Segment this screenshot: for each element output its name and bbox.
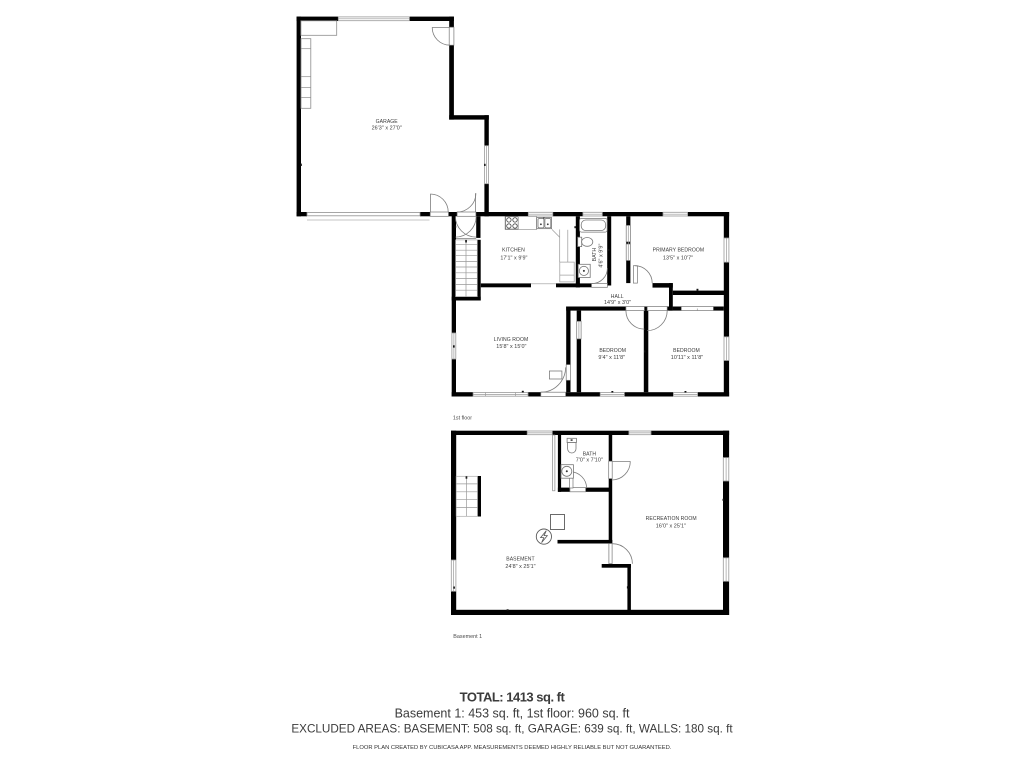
svg-text:7'0" x 7'10": 7'0" x 7'10" bbox=[576, 458, 603, 464]
svg-text:26'3" x 27'0": 26'3" x 27'0" bbox=[372, 126, 402, 132]
svg-text:PRIMARY BEDROOM: PRIMARY BEDROOM bbox=[653, 248, 705, 254]
svg-text:24'8" x 25'1": 24'8" x 25'1" bbox=[505, 564, 535, 570]
svg-text:15'8" x 15'0": 15'8" x 15'0" bbox=[496, 344, 526, 350]
svg-text:GARAGE: GARAGE bbox=[376, 119, 399, 125]
svg-text:RECREATION ROOM: RECREATION ROOM bbox=[646, 516, 697, 522]
svg-text:HALL: HALL bbox=[611, 294, 624, 300]
svg-text:KITCHEN: KITCHEN bbox=[502, 248, 525, 254]
svg-text:FLOOR PLAN CREATED BY CUBICASA: FLOOR PLAN CREATED BY CUBICASA APP. MEAS… bbox=[353, 745, 672, 751]
svg-text:BEDROOM: BEDROOM bbox=[673, 348, 700, 354]
svg-text:4'6" x 9'9": 4'6" x 9'9" bbox=[598, 244, 604, 268]
svg-text:Basement 1: Basement 1 bbox=[453, 634, 482, 640]
svg-text:14'9" x 3'0": 14'9" x 3'0" bbox=[604, 300, 631, 306]
svg-text:Basement 1: 453 sq. ft, 1st fl: Basement 1: 453 sq. ft, 1st floor: 960 s… bbox=[395, 706, 630, 720]
svg-text:13'5" x 10'7": 13'5" x 10'7" bbox=[663, 255, 693, 261]
svg-text:10'11" x 11'8": 10'11" x 11'8" bbox=[671, 355, 703, 361]
svg-text:17'1" x 9'9": 17'1" x 9'9" bbox=[500, 255, 527, 261]
svg-text:EXCLUDED AREAS: BASEMENT: 508: EXCLUDED AREAS: BASEMENT: 508 sq. ft, GA… bbox=[291, 723, 733, 736]
svg-text:BATH: BATH bbox=[592, 248, 598, 262]
svg-text:LIVING ROOM: LIVING ROOM bbox=[494, 337, 529, 343]
svg-text:1st floor: 1st floor bbox=[453, 415, 472, 421]
svg-text:BATH: BATH bbox=[583, 451, 597, 457]
svg-text:TOTAL: 1413 sq. ft: TOTAL: 1413 sq. ft bbox=[460, 690, 566, 705]
svg-text:BEDROOM: BEDROOM bbox=[599, 348, 626, 354]
svg-text:BASEMENT: BASEMENT bbox=[506, 556, 534, 562]
svg-text:16'0" x 25'1": 16'0" x 25'1" bbox=[656, 523, 686, 529]
svg-text:9'4" x 11'8": 9'4" x 11'8" bbox=[598, 355, 625, 361]
